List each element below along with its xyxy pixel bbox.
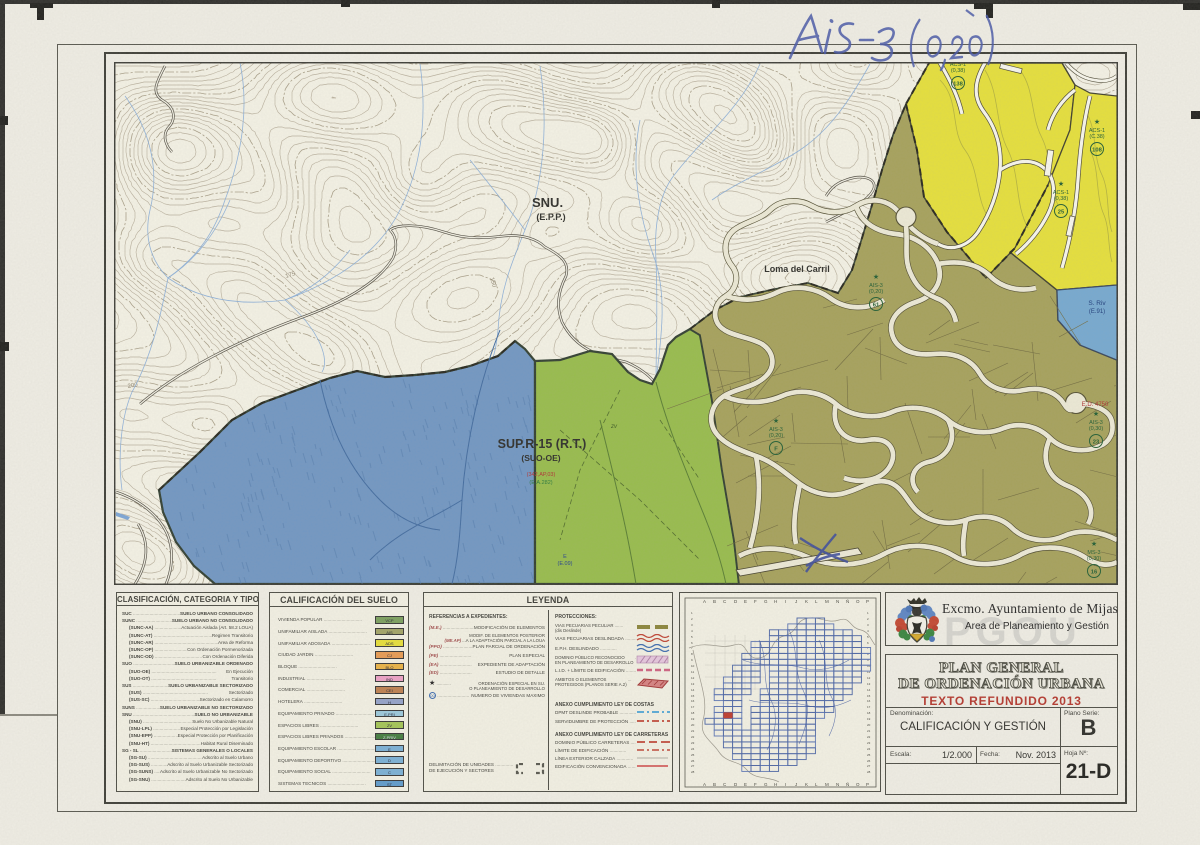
svg-text:O: O [856, 782, 860, 787]
svg-text:zv: zv [610, 424, 618, 430]
svg-text:16: 16 [691, 699, 695, 703]
svg-text:27: 27 [691, 764, 695, 768]
svg-text:19: 19 [867, 717, 871, 721]
svg-text:13: 13 [691, 682, 695, 686]
svg-text:A: A [703, 599, 706, 604]
svg-text:K: K [805, 782, 808, 787]
svg-text:23: 23 [691, 741, 695, 745]
svg-text:19: 19 [691, 717, 695, 721]
svg-text:H: H [774, 782, 777, 787]
svg-text:11: 11 [867, 670, 870, 674]
svg-text:(E.91): (E.91) [1089, 309, 1105, 315]
svg-text:(E.09): (E.09) [558, 561, 573, 567]
svg-text:I: I [785, 599, 786, 604]
svg-text:4: 4 [867, 629, 869, 633]
svg-text:26: 26 [691, 759, 695, 763]
svg-text:21: 21 [867, 729, 871, 733]
svg-text:S. Riv: S. Riv [1088, 300, 1106, 307]
svg-text:27: 27 [867, 764, 871, 768]
svg-text:23: 23 [1093, 439, 1100, 445]
svg-text:E: E [744, 782, 747, 787]
svg-text:D: D [734, 782, 738, 787]
svg-text:14: 14 [867, 688, 871, 692]
svg-text:H: H [774, 599, 777, 604]
svg-text:(0,20): (0,20) [769, 433, 784, 439]
svg-text:(0,38): (0,38) [1054, 196, 1069, 202]
svg-text:N: N [836, 782, 839, 787]
svg-text:G: G [764, 782, 768, 787]
svg-text:9: 9 [691, 658, 693, 662]
svg-text:18: 18 [691, 711, 695, 715]
svg-text:6: 6 [691, 641, 693, 645]
svg-text:12: 12 [691, 676, 695, 680]
svg-text:14: 14 [691, 688, 695, 692]
svg-text:12: 12 [867, 676, 871, 680]
svg-text:138: 138 [953, 81, 963, 87]
svg-text:Ñ: Ñ [846, 598, 849, 604]
svg-text:25: 25 [1058, 209, 1065, 215]
svg-text:(0,30): (0,30) [1089, 426, 1104, 432]
svg-text:C: C [723, 782, 727, 787]
svg-text:3: 3 [867, 623, 869, 627]
svg-text:28: 28 [691, 770, 695, 774]
svg-text:24: 24 [691, 747, 695, 751]
svg-text:108: 108 [1092, 147, 1102, 153]
svg-text:B: B [713, 599, 716, 604]
svg-text:20: 20 [867, 723, 871, 727]
svg-text:7: 7 [867, 646, 869, 650]
svg-text:4: 4 [691, 629, 693, 633]
svg-text:★: ★ [1093, 410, 1099, 418]
svg-text:K: K [805, 599, 808, 604]
svg-text:15: 15 [867, 694, 871, 698]
svg-text:(0,20): (0,20) [869, 289, 884, 295]
svg-text:F: F [754, 782, 757, 787]
svg-text:23: 23 [867, 741, 871, 745]
svg-text:L: L [815, 782, 818, 787]
svg-text:3: 3 [691, 623, 693, 627]
svg-text:(SUO-OE): (SUO-OE) [521, 453, 560, 463]
svg-text:P: P [866, 782, 869, 787]
svg-text:25: 25 [691, 753, 695, 757]
svg-text:J: J [795, 599, 797, 604]
svg-text:1: 1 [867, 611, 869, 615]
svg-text:21: 21 [691, 729, 695, 733]
svg-text:18: 18 [867, 711, 871, 715]
svg-text:★: ★ [1058, 180, 1064, 188]
svg-text:A: A [703, 782, 706, 787]
svg-text:Loma del Carril: Loma del Carril [764, 264, 830, 274]
svg-text:11: 11 [691, 670, 694, 674]
svg-text:★: ★ [1094, 118, 1100, 126]
svg-text:10: 10 [691, 664, 695, 668]
svg-text:8: 8 [691, 652, 693, 656]
svg-text:(C.38): (C.38) [1089, 134, 1104, 140]
svg-text:J: J [795, 782, 797, 787]
svg-text:25: 25 [867, 753, 871, 757]
svg-text:E: E [563, 554, 567, 560]
svg-text:N: N [836, 599, 839, 604]
svg-text:G: G [764, 599, 768, 604]
svg-text:D: D [734, 599, 738, 604]
svg-text:61: 61 [873, 302, 880, 308]
svg-text:15: 15 [691, 694, 695, 698]
svg-text:★: ★ [1091, 540, 1097, 548]
svg-text:17: 17 [691, 705, 695, 709]
svg-text:24: 24 [867, 747, 871, 751]
svg-text:P: P [866, 599, 869, 604]
svg-text:E.D. 4750: E.D. 4750 [1082, 402, 1109, 408]
svg-text:M: M [825, 782, 829, 787]
svg-text:17: 17 [867, 705, 871, 709]
svg-text:9: 9 [867, 658, 869, 662]
svg-text:★: ★ [873, 273, 879, 281]
svg-text:22: 22 [691, 735, 695, 739]
svg-text:B: B [713, 782, 716, 787]
svg-text:(342,AP,03): (342,AP,03) [527, 472, 556, 478]
svg-text:13: 13 [867, 682, 871, 686]
svg-text:I: I [785, 782, 786, 787]
svg-text:L: L [815, 599, 818, 604]
svg-text:(E.P.P.): (E.P.P.) [536, 212, 565, 222]
svg-text:SUP.R-15 (R.T.): SUP.R-15 (R.T.) [498, 437, 587, 451]
svg-text:10: 10 [867, 664, 871, 668]
svg-text:(0,30): (0,30) [1087, 556, 1102, 562]
svg-text:C: C [723, 599, 727, 604]
svg-text:5: 5 [691, 635, 693, 639]
svg-text:16: 16 [867, 699, 871, 703]
svg-text:6: 6 [867, 641, 869, 645]
svg-text:28: 28 [867, 770, 871, 774]
svg-text:22: 22 [867, 735, 871, 739]
svg-text:F: F [774, 446, 778, 452]
svg-text:2: 2 [867, 617, 869, 621]
svg-text:2: 2 [691, 617, 693, 621]
svg-text:SNU.: SNU. [532, 195, 563, 210]
svg-text:20: 20 [691, 723, 695, 727]
svg-text:Ñ: Ñ [846, 781, 849, 787]
svg-text:M: M [825, 599, 829, 604]
svg-text:26: 26 [867, 759, 871, 763]
svg-text:O: O [856, 599, 860, 604]
svg-text:(E.A.282): (E.A.282) [529, 480, 552, 486]
svg-text:16: 16 [1091, 569, 1098, 575]
svg-text:F: F [754, 599, 757, 604]
svg-text:8: 8 [867, 652, 869, 656]
svg-text:E: E [744, 599, 747, 604]
svg-text:★: ★ [773, 417, 779, 425]
svg-text:1: 1 [691, 611, 693, 615]
